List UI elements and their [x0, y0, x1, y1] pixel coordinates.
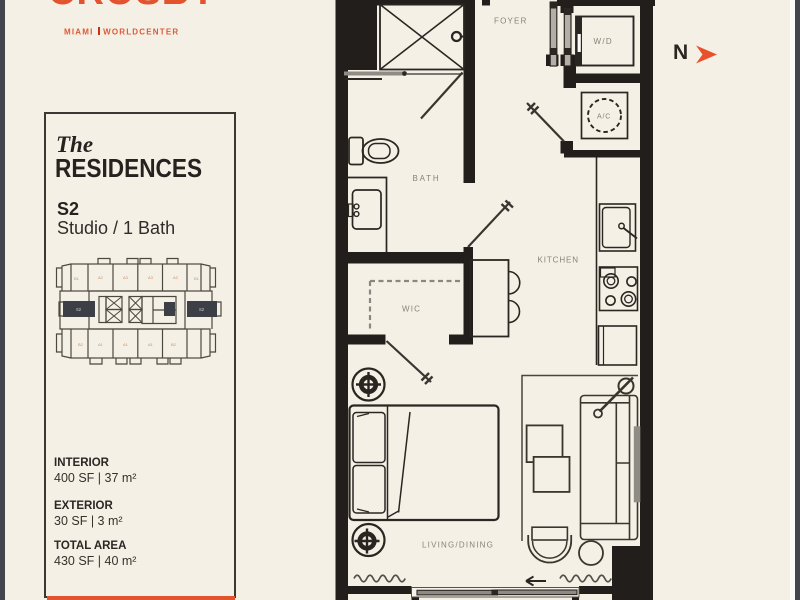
svg-text:LIVING/DINING: LIVING/DINING: [422, 541, 494, 550]
svg-text:FOYER: FOYER: [494, 17, 528, 26]
svg-text:A2: A2: [98, 275, 104, 280]
svg-text:B2: B2: [171, 342, 177, 347]
svg-text:W/D: W/D: [594, 37, 613, 46]
svg-text:BATH: BATH: [413, 174, 441, 183]
svg-text:KITCHEN: KITCHEN: [538, 256, 579, 265]
svg-text:A2: A2: [173, 275, 179, 280]
svg-text:A1: A1: [98, 342, 104, 347]
svg-text:A/C: A/C: [597, 114, 611, 121]
svg-text:A1: A1: [123, 342, 129, 347]
svg-text:WIC: WIC: [402, 305, 421, 314]
svg-text:A3: A3: [148, 275, 154, 280]
svg-text:A1: A1: [148, 342, 154, 347]
svg-text:B1: B1: [194, 276, 200, 281]
svg-text:B2: B2: [78, 342, 84, 347]
svg-text:S2: S2: [199, 307, 205, 312]
svg-text:S2: S2: [76, 307, 82, 312]
svg-text:B1: B1: [74, 276, 80, 281]
svg-text:A3: A3: [123, 275, 129, 280]
